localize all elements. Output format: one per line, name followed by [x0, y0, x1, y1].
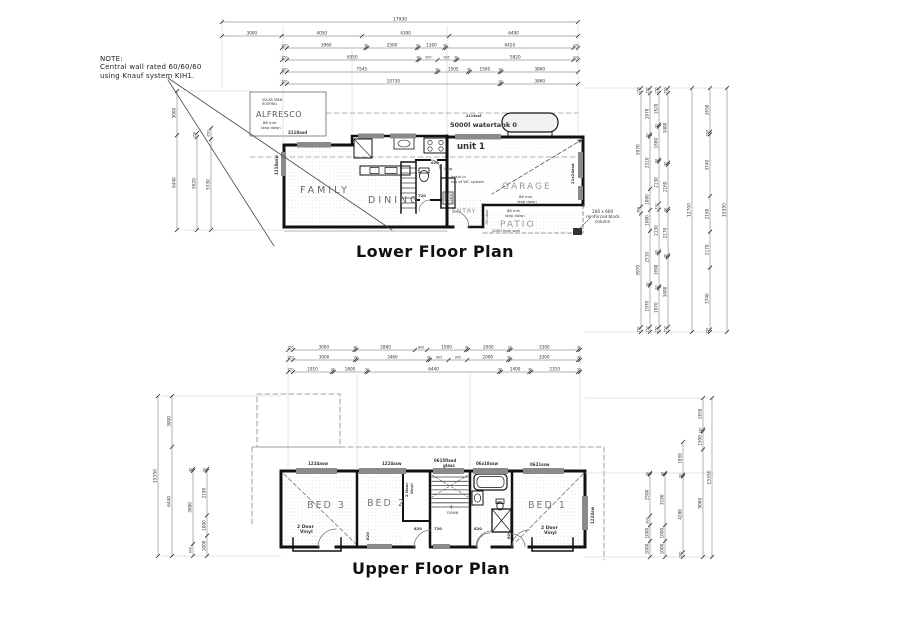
- dim-value: 250: [664, 88, 668, 94]
- dim-value: 1850: [678, 453, 683, 464]
- window: [297, 142, 331, 148]
- unit-label: unit 1: [457, 142, 485, 152]
- dim-value: 90: [354, 356, 358, 360]
- dim-value: 250: [655, 326, 659, 332]
- dim-value: 2000: [483, 345, 494, 350]
- extension-lines: [162, 18, 728, 557]
- dim-value: 90: [427, 356, 431, 360]
- dim-value: 250: [193, 132, 197, 138]
- window: [358, 134, 384, 139]
- dim-value: 90: [203, 468, 207, 472]
- dim-value: 1000: [660, 527, 665, 538]
- dim-value: 1600: [345, 367, 356, 372]
- window: [390, 134, 416, 139]
- dim-value: 2160: [705, 208, 710, 219]
- dim-value: 90: [664, 254, 668, 258]
- dim-value: 5330: [206, 179, 211, 190]
- cooktop-ring: [428, 140, 432, 144]
- window: [578, 152, 583, 178]
- wall-note: 2000 high wall: [492, 228, 520, 233]
- dim-value: 1000: [645, 194, 650, 205]
- dim-value: 5820: [510, 55, 521, 60]
- dim-value: 90: [655, 159, 659, 163]
- dim-value: 90: [577, 346, 581, 350]
- dim-value: 2310: [549, 367, 560, 372]
- dim-value: 3860: [534, 67, 545, 72]
- dim-value: 90: [655, 285, 659, 289]
- floor-plan-sheet: 1793030004050439064902503960902500901300…: [0, 0, 900, 642]
- window: [523, 468, 564, 474]
- dim-value: 3740: [705, 160, 710, 171]
- cooktop-ring: [439, 147, 443, 151]
- dim-value: 1690: [654, 264, 659, 275]
- dim-value: 150: [699, 428, 703, 434]
- dim-value: 90: [508, 346, 512, 350]
- roof-dashed-rect: [257, 394, 340, 447]
- dim-value: 90: [577, 368, 581, 372]
- dim-value: 90: [499, 68, 503, 72]
- dim-value: 1000: [645, 527, 650, 538]
- dim-value: 230: [573, 44, 579, 48]
- dim-value: 5620: [192, 178, 197, 189]
- dim-value: 90: [353, 346, 357, 350]
- dim-value: 250: [281, 56, 287, 60]
- dim-value: 12700: [687, 203, 693, 217]
- dim-value: 250: [281, 44, 287, 48]
- dim-value: 90: [664, 208, 668, 212]
- dim-value: 90: [189, 468, 193, 472]
- dim-value: 250: [281, 68, 287, 72]
- door-label: 720: [418, 193, 426, 198]
- plan-drawing: 1793030004050439064902503960902500901300…: [0, 0, 900, 642]
- door-label: 820: [474, 526, 482, 531]
- dim-value: 2510: [645, 252, 650, 263]
- dim-value: 90: [577, 356, 581, 360]
- dim-value: 4390: [400, 31, 411, 36]
- sink: [394, 138, 414, 149]
- dim-value: 2190: [202, 487, 207, 498]
- dim-value: 3740: [705, 293, 710, 304]
- dim-value: 905: [425, 56, 431, 60]
- dim-value: 15350: [707, 470, 713, 484]
- wc-note: top of WC system: [451, 179, 485, 184]
- dim-value: 600: [189, 547, 193, 553]
- dim-value: 1970: [645, 300, 650, 311]
- dim-value: 250: [646, 326, 650, 332]
- dim-value: 90: [507, 356, 511, 360]
- generated-annotations: 1793030004050439064902503960902500901300…: [153, 17, 730, 560]
- dim-value: 10730: [387, 79, 401, 84]
- dim-value: 3000: [246, 31, 257, 36]
- dim-value: 1300: [426, 43, 437, 48]
- dim-value: 90: [646, 472, 650, 476]
- dim-value: 1000: [202, 520, 207, 531]
- room-laundry: LNDY: [448, 192, 453, 203]
- dim-value: 6490: [508, 31, 519, 36]
- room-bed2: BED 2: [367, 498, 406, 509]
- dim-value: 90: [416, 44, 420, 48]
- robe-label: Vinyl: [409, 483, 414, 494]
- door-label: 720: [434, 526, 442, 531]
- dim-value: 230: [573, 56, 579, 60]
- alfresco-roofing-note: ROOFING: [262, 102, 277, 106]
- cooktop-ring: [439, 140, 443, 144]
- dim-value: 150: [706, 328, 710, 334]
- window-label: 06x18ssw: [476, 461, 498, 466]
- dim-value: 260: [679, 552, 683, 558]
- dim-value: 90: [528, 368, 532, 372]
- dim-value: 1000: [202, 540, 207, 551]
- dim-value: 6440: [428, 367, 439, 372]
- dim-value: 4050: [316, 31, 327, 36]
- dim-value: 2160: [663, 181, 668, 192]
- dim-value: 905: [436, 356, 442, 360]
- stair-arrow: ↑: [449, 505, 453, 511]
- dim-value: 250: [288, 346, 294, 350]
- dim-value: 90: [679, 474, 683, 478]
- dim-value: 905: [455, 356, 461, 360]
- dim-value: 6440: [167, 496, 172, 507]
- dim-value: 17930: [393, 17, 407, 23]
- door-label: 820: [431, 160, 439, 165]
- cooktop-ring: [428, 147, 432, 151]
- dim-value: 5970: [636, 265, 641, 276]
- dim-value: 4280: [678, 509, 683, 520]
- window: [455, 134, 501, 140]
- dim-value: 3300: [539, 345, 550, 350]
- dim-value: 2650: [698, 408, 703, 419]
- dim-value: 90: [498, 368, 502, 372]
- dim-value: 2000: [482, 355, 493, 360]
- toilet: [420, 171, 429, 182]
- dim-value: 1690: [654, 138, 659, 149]
- dim-value: 3960: [321, 43, 332, 48]
- dim-value: 90: [416, 56, 420, 60]
- dim-value: 90: [331, 368, 335, 372]
- window-label: 2118asd: [288, 130, 307, 135]
- window-label: 1224ssw: [382, 461, 402, 466]
- dim-value: 250: [637, 87, 641, 93]
- door-arc: [419, 200, 430, 211]
- window: [296, 468, 337, 474]
- dim-value: 2510: [645, 157, 650, 168]
- window: [367, 544, 392, 549]
- dim-value: 90: [365, 368, 369, 372]
- dim-value: 3000: [318, 345, 329, 350]
- dim-value: 1400: [510, 367, 521, 372]
- dim-value: 1000: [660, 543, 665, 554]
- dim-value: 90: [465, 346, 469, 350]
- dim-value: 3300: [539, 355, 550, 360]
- cooktop: [424, 138, 447, 153]
- room-family: FAMILY: [300, 185, 350, 196]
- lower-plan-title: Lower Floor Plan: [356, 242, 514, 261]
- dim-value: 1505: [448, 67, 459, 72]
- dim-value: 7545: [356, 67, 367, 72]
- dim-value: 1900: [441, 345, 452, 350]
- dim-value: 3860: [534, 79, 545, 84]
- window-label: glass: [443, 463, 455, 468]
- dim-value: 2170: [663, 227, 668, 238]
- door-label: 820: [365, 532, 370, 540]
- room-bed1: BED 1: [528, 500, 567, 511]
- dim-value: 90: [664, 162, 668, 166]
- dim-value: 360: [637, 207, 641, 213]
- dim-value: 90: [499, 80, 503, 84]
- robe-label: Vinyl: [544, 530, 557, 536]
- window: [582, 496, 588, 530]
- dim-value: 310: [655, 204, 659, 210]
- dim-value: 3680: [188, 502, 193, 513]
- stair-down-label: DOWN: [447, 511, 459, 515]
- dim-value: 6440: [172, 177, 177, 188]
- dim-value: 1970: [645, 108, 650, 119]
- dim-value: 3400: [663, 286, 668, 297]
- door-arc: [414, 530, 431, 547]
- dim-value: 250: [655, 87, 659, 93]
- dim-value: 3000: [319, 355, 330, 360]
- upper-plan-title: Upper Floor Plan: [352, 559, 510, 578]
- dim-value: 250: [288, 356, 294, 360]
- dim-value: 650: [207, 130, 211, 136]
- step-note: step down: [517, 199, 537, 204]
- window: [433, 468, 464, 474]
- dim-value: 600: [646, 517, 650, 523]
- dim-value: 6550: [347, 55, 358, 60]
- stair-treads: [432, 477, 468, 507]
- dim-value: 1000: [645, 543, 650, 554]
- dim-value: 150: [706, 130, 710, 136]
- note-line: NOTE:: [100, 55, 202, 63]
- dim-value: 90: [646, 133, 650, 137]
- window-label: 0621ssw: [530, 462, 550, 467]
- dim-value: 90: [364, 44, 368, 48]
- dim-value: 2650: [705, 104, 710, 115]
- dim-value: 2170: [705, 244, 710, 255]
- dim-value: 2130: [654, 225, 659, 236]
- room-garage: GARAGE: [502, 182, 552, 192]
- door-label: 720 door: [485, 209, 489, 225]
- dim-value: 1970: [654, 302, 659, 313]
- window-label: 1224asw: [308, 461, 328, 466]
- window-label: 2113asf: [466, 114, 482, 118]
- dim-value: 250: [646, 88, 650, 94]
- watertank-label: 5000l watertank 0: [450, 121, 517, 129]
- dim-value: 3000: [167, 416, 172, 427]
- room-alfresco: ALFRESCO: [256, 110, 302, 119]
- dim-value: 3400: [663, 122, 668, 133]
- room-entry: ENTRY: [452, 208, 476, 215]
- step-note: step down: [505, 213, 525, 218]
- window: [473, 468, 508, 474]
- sink-bowl: [398, 140, 410, 147]
- room-bed3: BED 3: [307, 500, 346, 511]
- dim-value: 90: [655, 124, 659, 128]
- window: [578, 186, 583, 200]
- dim-value: 2860: [380, 345, 391, 350]
- dim-value: 250: [664, 326, 668, 332]
- dim-value: 90: [443, 44, 447, 48]
- dim-value: 1500: [479, 67, 490, 72]
- dim-value: 15350: [722, 203, 728, 217]
- dim-value: 250: [637, 327, 641, 333]
- dim-value: 9000: [698, 498, 703, 509]
- dim-value: 250: [281, 80, 287, 84]
- step-note: step down: [261, 125, 281, 130]
- dim-value: 90: [646, 282, 650, 286]
- dim-value: 90: [661, 472, 665, 476]
- robe-label: Vinyl: [300, 529, 313, 535]
- dim-value: 90: [467, 68, 471, 72]
- dim-value: 90: [655, 250, 659, 254]
- door-label: 21x24asd: [570, 163, 575, 184]
- landing-note: lndg: [444, 166, 453, 171]
- window: [359, 468, 406, 474]
- construction-note: NOTE: Central wall rated 60/60/60 using …: [100, 55, 202, 80]
- dim-value: 905: [443, 56, 449, 60]
- dim-value: 1000: [645, 215, 650, 226]
- dim-value: 6420: [504, 43, 515, 48]
- note-line: Central wall rated 60/60/60: [100, 63, 202, 71]
- dim-value: 1910: [307, 367, 318, 372]
- dim-value: 1620: [654, 103, 659, 114]
- dim-value: 3000: [172, 107, 177, 118]
- dim-value: 600: [418, 346, 424, 350]
- fridge-diagonal: [354, 139, 372, 158]
- dim-value: 5970: [636, 144, 641, 155]
- door-label: 820: [506, 531, 511, 539]
- dim-value: 1500: [698, 435, 703, 446]
- dim-value: 3460: [387, 355, 398, 360]
- note-line: using Knauf system KIH1.: [100, 72, 202, 80]
- door-label: 820: [414, 526, 422, 531]
- dim-note: 900: [496, 500, 502, 504]
- dim-value: 3190: [660, 494, 665, 505]
- room-dining: DINING: [368, 195, 421, 206]
- window: [433, 544, 450, 549]
- column-leader: [579, 218, 590, 229]
- window-label: 1224sw: [590, 506, 595, 524]
- dim-value: 90: [435, 68, 439, 72]
- window-label: 1218asw: [274, 155, 279, 175]
- dim-value: 90: [454, 56, 458, 60]
- column-note: column: [595, 219, 611, 224]
- dim-value: 2500: [387, 43, 398, 48]
- dim-value: 250: [287, 368, 293, 372]
- dim-value: 2590: [645, 489, 650, 500]
- dim-value: 15350: [153, 469, 159, 483]
- block-column: [573, 228, 582, 235]
- dim-value: 2130: [654, 177, 659, 188]
